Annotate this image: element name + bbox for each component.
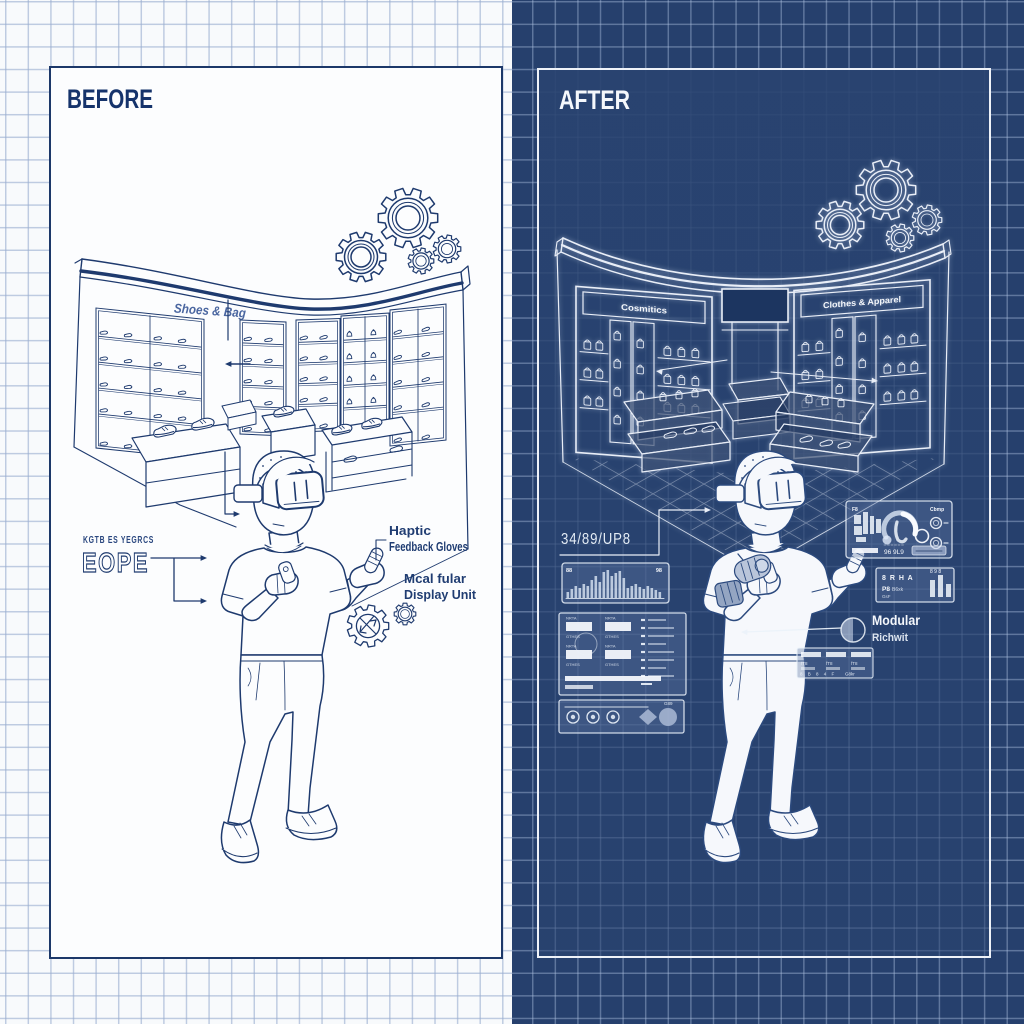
svg-text:GTHES: GTHES	[605, 634, 619, 639]
svg-text:8 B 8 4 F: 8 B 8 4 F	[800, 672, 836, 677]
svg-text:GsF: GsF	[882, 594, 891, 599]
svg-text:88: 88	[566, 568, 572, 574]
svg-text:P8: P8	[882, 586, 890, 593]
svg-text:fT8: fT8	[851, 661, 858, 666]
svg-text:96 9L9: 96 9L9	[884, 549, 904, 556]
svg-text:Clothes & Apparel: Clothes & Apparel	[823, 294, 901, 310]
svg-text:98: 98	[656, 568, 662, 574]
svg-text:Richwit: Richwit	[872, 632, 908, 644]
svg-text:GTHES: GTHES	[605, 662, 619, 667]
svg-text:NRTA: NRTA	[566, 616, 577, 621]
svg-text:EOPE: EOPE	[82, 547, 149, 578]
svg-text:B6xk: B6xk	[892, 587, 904, 593]
svg-text:KGTB ES YEGRCS: KGTB ES YEGRCS	[83, 535, 154, 546]
svg-text:BEFORE: BEFORE	[67, 84, 153, 114]
svg-text:GTHES: GTHES	[566, 662, 580, 667]
svg-text:fT8: fT8	[826, 661, 833, 666]
svg-text:G8kr: G8kr	[845, 672, 855, 677]
svg-text:NRTA: NRTA	[605, 616, 616, 621]
svg-text:34/89/UP8: 34/89/UP8	[561, 531, 631, 548]
svg-text:Cosmitics: Cosmitics	[621, 302, 667, 316]
svg-text:NRTA: NRTA	[605, 644, 616, 649]
svg-text:Mcal fular: Mcal fular	[404, 571, 466, 586]
svg-text:8 R H A: 8 R H A	[882, 575, 914, 582]
svg-text:AFTER: AFTER	[559, 85, 630, 115]
svg-text:Cbmp: Cbmp	[930, 507, 944, 513]
svg-text:F8: F8	[852, 507, 858, 513]
svg-text:G89: G89	[664, 701, 673, 706]
svg-text:8 9 8: 8 9 8	[930, 569, 941, 575]
svg-text:Feedback Gloves: Feedback Gloves	[389, 539, 468, 554]
svg-text:fT8: fT8	[801, 661, 808, 666]
svg-text:Modular: Modular	[872, 613, 921, 628]
svg-text:Display Unit: Display Unit	[404, 587, 477, 602]
svg-text:Haptic: Haptic	[389, 523, 431, 538]
